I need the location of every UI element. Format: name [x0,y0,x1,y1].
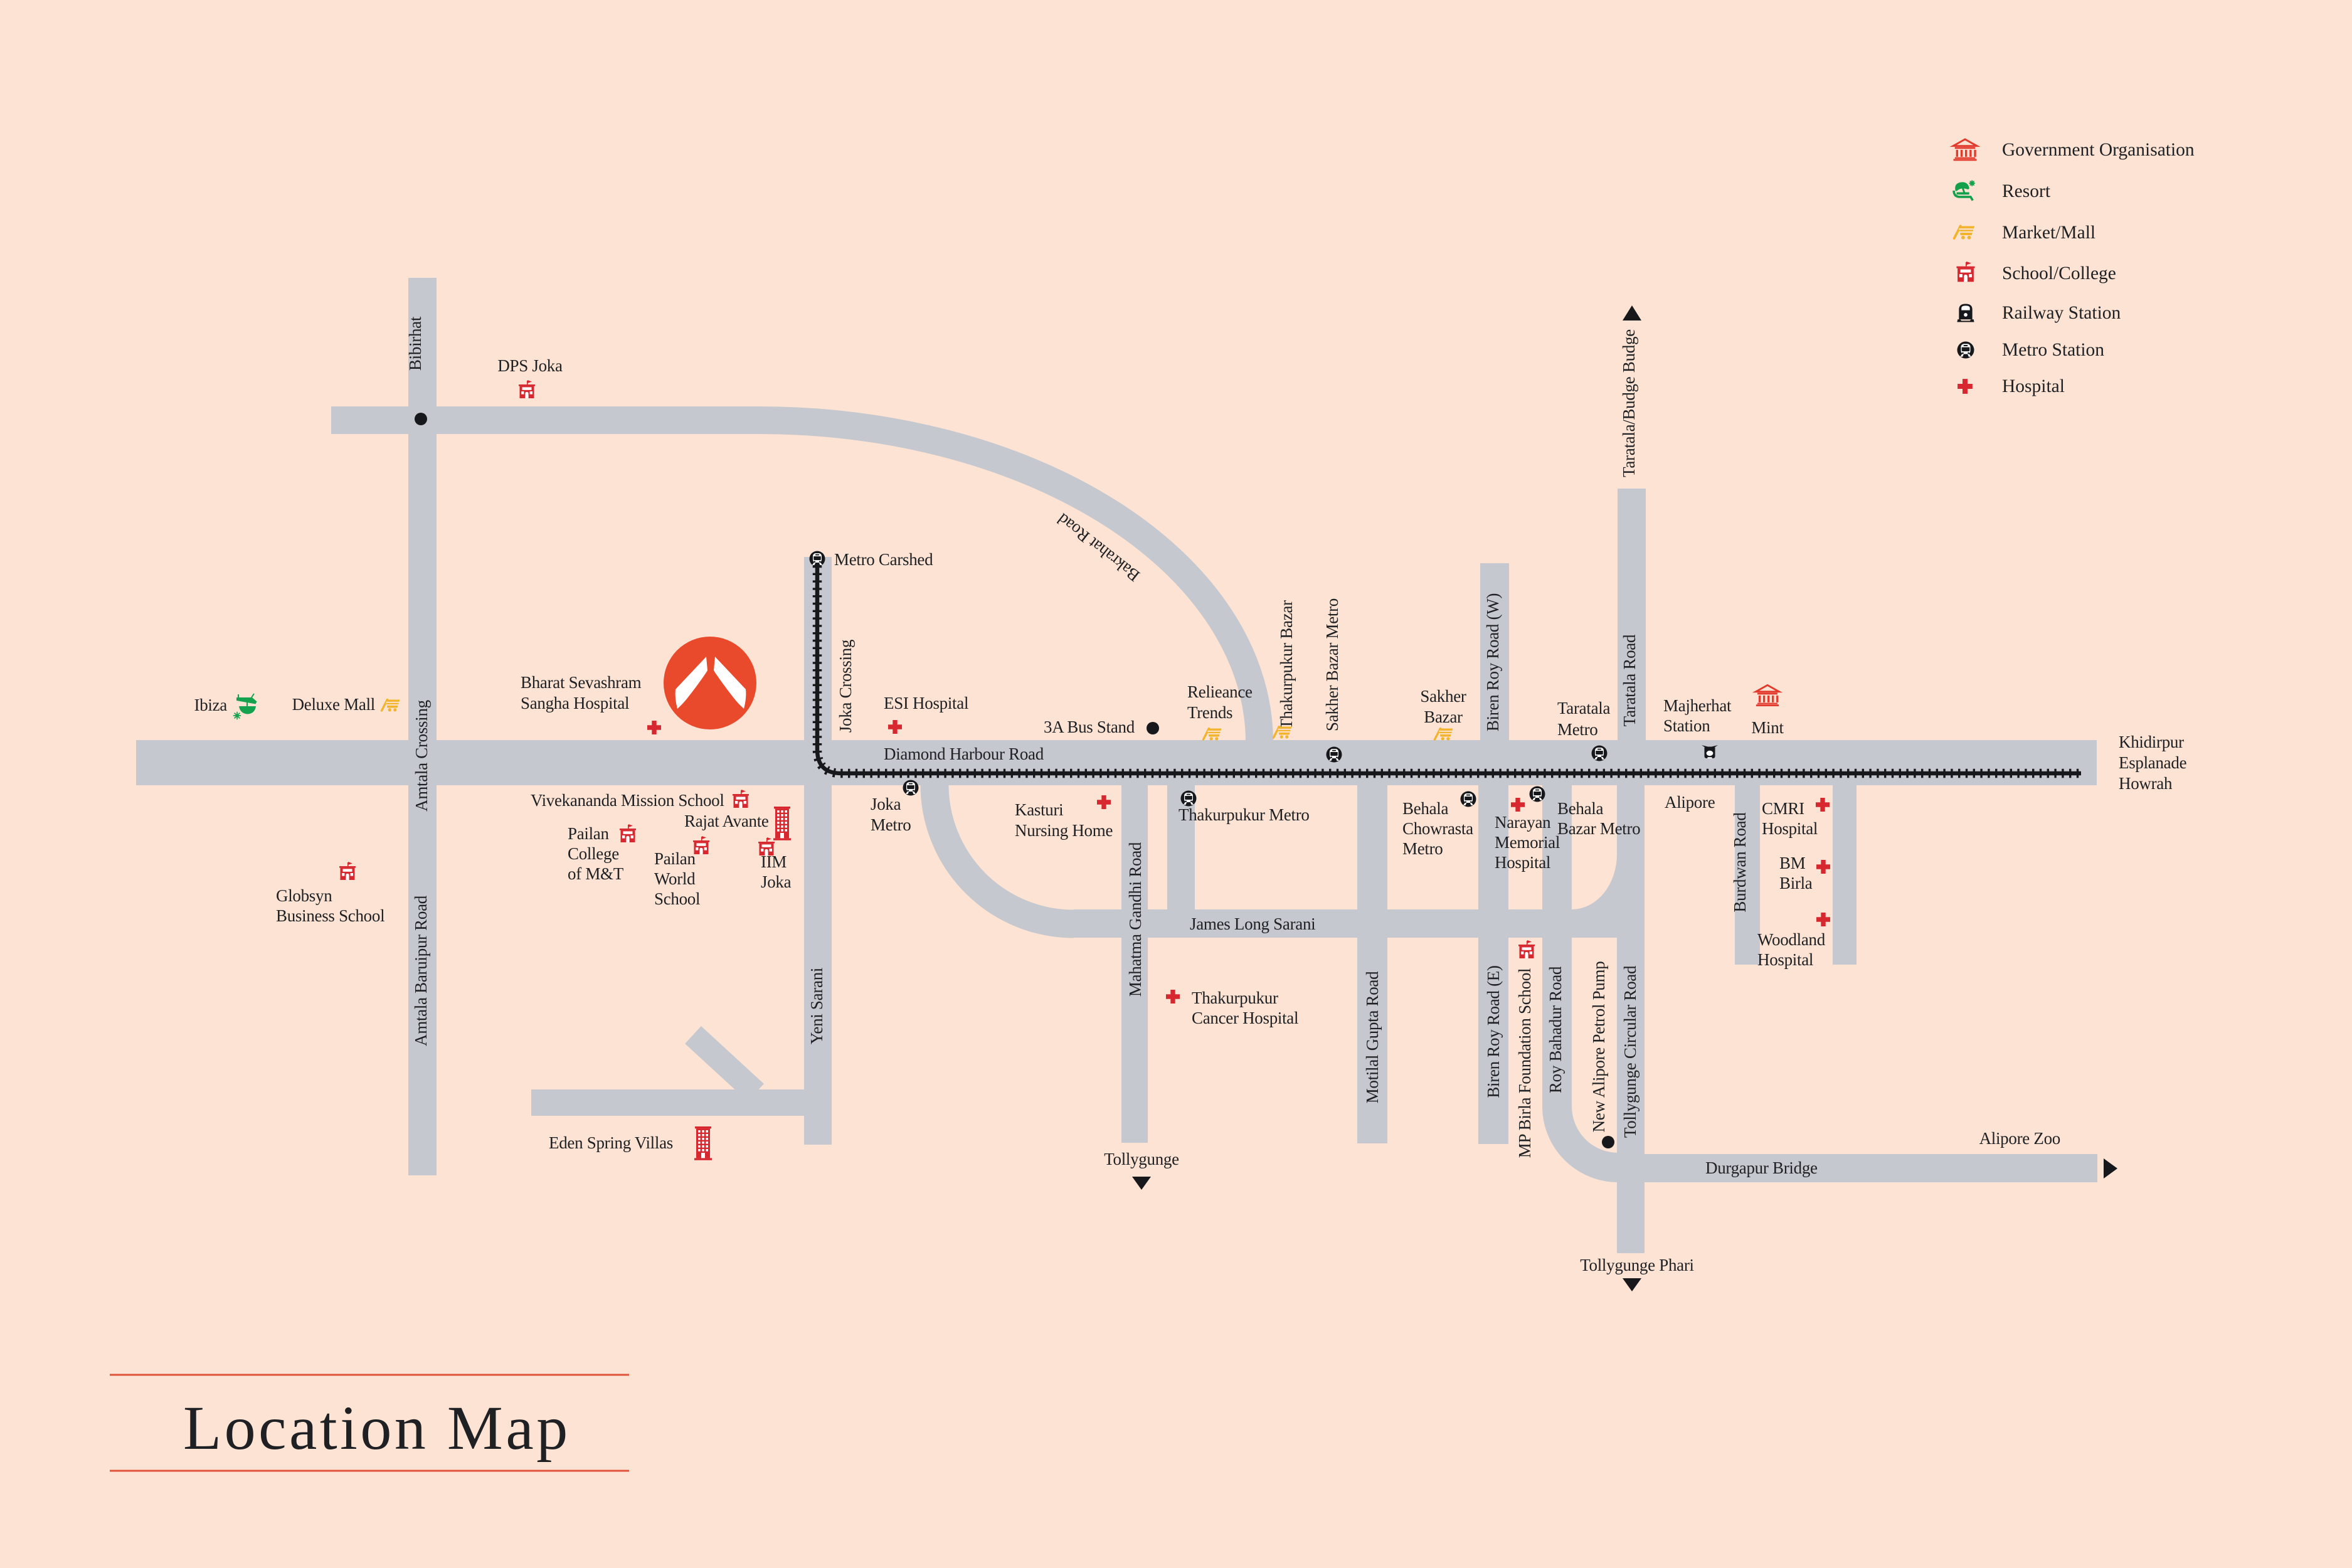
svg-text:Vivekananda Mission School: Vivekananda Mission School [531,791,724,810]
svg-text:Taratala Road: Taratala Road [1620,634,1639,726]
svg-text:Amtala Crossing: Amtala Crossing [412,700,431,812]
svg-text:Thakurpukur Metro: Thakurpukur Metro [1179,805,1310,824]
svg-text:Metro Carshed: Metro Carshed [834,550,933,569]
svg-text:Metro Station: Metro Station [2002,340,2104,360]
svg-text:Location Map: Location Map [183,1393,571,1463]
svg-text:Market/Mall: Market/Mall [2002,223,2095,243]
svg-text:Mint: Mint [1751,718,1784,737]
svg-text:MP Birla Foundation School: MP Birla Foundation School [1515,968,1534,1158]
svg-text:Roy Bahadur Road: Roy Bahadur Road [1546,966,1565,1093]
svg-text:Resort: Resort [2002,181,2051,201]
svg-text:Biren Roy Road (W): Biren Roy Road (W) [1483,593,1502,731]
svg-text:Yeni Sarani: Yeni Sarani [807,968,826,1044]
svg-text:Sakher Bazar Metro: Sakher Bazar Metro [1323,598,1342,731]
svg-text:Bibirhat: Bibirhat [406,316,425,371]
svg-text:Thakurpukur Bazar: Thakurpukur Bazar [1277,600,1296,729]
svg-text:Rajat Avante: Rajat Avante [684,812,769,830]
svg-text:Mahatma Gandhi Road: Mahatma Gandhi Road [1126,842,1145,997]
svg-text:Alipore: Alipore [1665,793,1715,812]
svg-text:Ibiza: Ibiza [194,696,228,714]
svg-text:ESI Hospital: ESI Hospital [884,694,968,712]
svg-text:Amtala Baruipur Road: Amtala Baruipur Road [411,895,430,1046]
svg-text:Durgapur Bridge: Durgapur Bridge [1705,1158,1818,1177]
svg-text:Motilal Gupta Road: Motilal Gupta Road [1363,971,1382,1103]
svg-text:Railway Station: Railway Station [2002,303,2121,323]
svg-text:Alipore Zoo: Alipore Zoo [1979,1129,2060,1148]
svg-text:New Alipore Petrol Pump: New Alipore Petrol Pump [1589,961,1608,1133]
svg-text:Joka Crossing: Joka Crossing [836,640,855,733]
svg-text:Eden Spring Villas: Eden Spring Villas [549,1133,673,1152]
svg-text:School/College: School/College [2002,263,2116,283]
svg-text:Burdwan Road: Burdwan Road [1730,812,1749,913]
svg-text:Tollygunge Phari: Tollygunge Phari [1580,1256,1694,1274]
svg-text:Government Organisation: Government Organisation [2002,140,2195,160]
svg-text:PailanWorldSchool: PailanWorldSchool [654,849,700,908]
svg-text:James Long Sarani: James Long Sarani [1190,914,1315,933]
svg-text:Biren Roy Road (E): Biren Roy Road (E) [1484,965,1503,1098]
svg-text:Diamond Harbour Road: Diamond Harbour Road [884,744,1044,763]
svg-text:Deluxe Mall: Deluxe Mall [292,695,375,714]
svg-text:3A Bus Stand: 3A Bus Stand [1044,718,1135,736]
svg-text:Taratala/Budge Budge: Taratala/Budge Budge [1619,329,1638,477]
svg-text:NarayanMemorialHospital: NarayanMemorialHospital [1495,813,1560,872]
svg-text:DPS Joka: DPS Joka [497,356,563,375]
svg-text:Tollygunge Circular Road: Tollygunge Circular Road [1621,965,1640,1138]
svg-text:Tollygunge: Tollygunge [1104,1150,1179,1168]
svg-text:Hospital: Hospital [2002,376,2065,396]
